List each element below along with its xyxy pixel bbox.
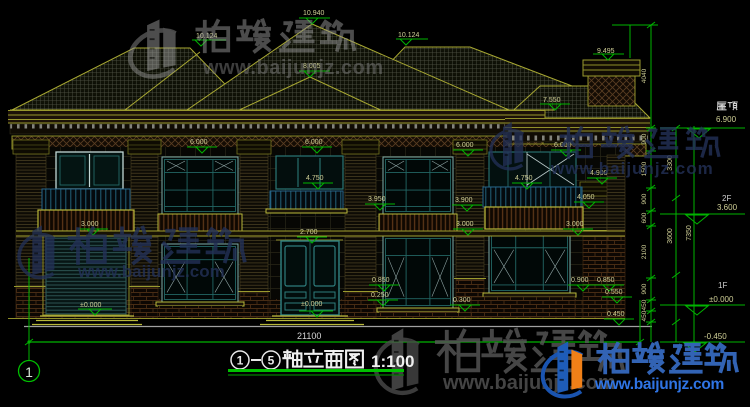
svg-text:1F: 1F (718, 281, 727, 290)
svg-text:-0.450: -0.450 (704, 332, 727, 341)
svg-text:3.950: 3.950 (368, 196, 386, 203)
svg-text:www.baijunjz.com: www.baijunjz.com (77, 262, 225, 281)
svg-text:0.250: 0.250 (371, 292, 389, 299)
svg-text:1:100: 1:100 (371, 352, 414, 371)
svg-text:5: 5 (268, 354, 275, 368)
svg-text:900: 900 (641, 283, 648, 294)
svg-text:0.450: 0.450 (607, 311, 625, 318)
svg-text:6.000: 6.000 (190, 139, 208, 146)
svg-text:6.000: 6.000 (456, 142, 474, 149)
svg-text:10.940: 10.940 (303, 10, 325, 17)
svg-text:0.300: 0.300 (453, 297, 471, 304)
svg-text:0.850: 0.850 (597, 277, 615, 284)
svg-text:7.550: 7.550 (543, 97, 561, 104)
svg-text:4040: 4040 (641, 68, 648, 83)
svg-text:450: 450 (641, 310, 648, 321)
svg-text:www.baijunjz.com: www.baijunjz.com (550, 159, 714, 178)
svg-text:2F: 2F (722, 194, 731, 203)
svg-text:±0.000: ±0.000 (301, 301, 322, 308)
svg-text:0.850: 0.850 (372, 277, 390, 284)
svg-text:6.000: 6.000 (305, 139, 323, 146)
svg-text:1: 1 (25, 364, 33, 380)
svg-text:3.000: 3.000 (81, 221, 99, 228)
svg-text:3.600: 3.600 (717, 203, 738, 212)
svg-text:7350: 7350 (686, 225, 693, 241)
svg-text:2.700: 2.700 (300, 229, 318, 236)
svg-text:4.750: 4.750 (515, 175, 533, 182)
svg-text:450: 450 (641, 299, 648, 310)
svg-text:10.124: 10.124 (398, 32, 420, 39)
svg-text:www.baijunjz.com: www.baijunjz.com (442, 372, 616, 394)
svg-text:6.900: 6.900 (716, 115, 737, 124)
svg-text:3.000: 3.000 (456, 221, 474, 228)
svg-text:±0.000: ±0.000 (80, 302, 101, 309)
svg-text:3600: 3600 (667, 228, 674, 244)
svg-text:3.000: 3.000 (566, 221, 584, 228)
svg-text:±0.000: ±0.000 (709, 295, 734, 304)
svg-text:4.750: 4.750 (306, 175, 324, 182)
svg-text:2100: 2100 (641, 244, 648, 259)
svg-text:0.900: 0.900 (571, 277, 589, 284)
svg-text:www.baijunjz.com: www.baijunjz.com (202, 57, 384, 79)
svg-text:0.550: 0.550 (605, 289, 623, 296)
svg-text:1: 1 (237, 354, 244, 368)
svg-text:www.baijunjz.com: www.baijunjz.com (594, 376, 724, 393)
svg-text:9.495: 9.495 (597, 48, 615, 55)
svg-text:21100: 21100 (297, 331, 321, 341)
svg-text:600: 600 (641, 212, 648, 223)
svg-text:4.050: 4.050 (577, 194, 595, 201)
svg-text:900: 900 (641, 193, 648, 204)
svg-text:3.900: 3.900 (455, 197, 473, 204)
